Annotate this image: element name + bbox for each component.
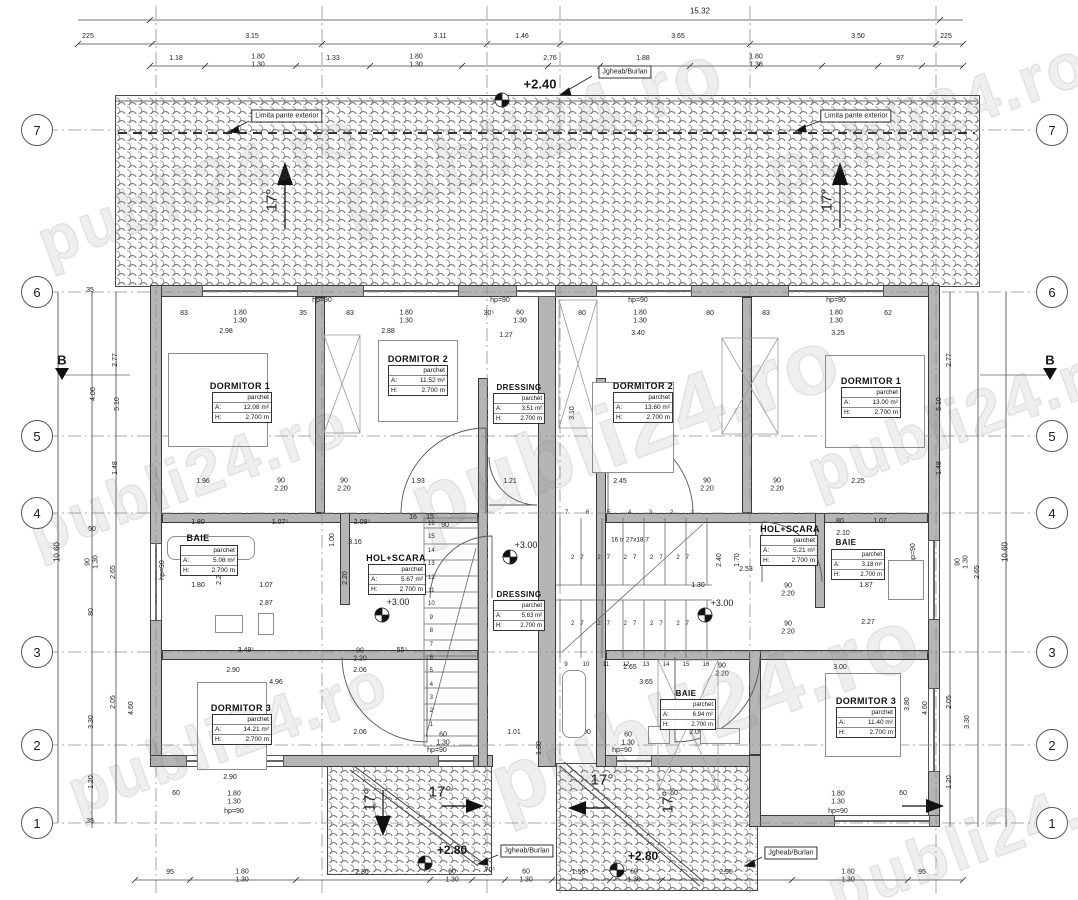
dim: hp=90 [224,808,244,816]
room-height: 2.700 m [792,557,816,564]
room-height: 2.700 m [860,572,882,578]
stair-num: 9 [556,662,576,668]
slope-label: 17° [660,791,677,814]
grid-label: 3 [1048,645,1055,660]
dim: 60 [899,790,907,798]
room-area: 13.00 m² [872,399,898,406]
callout-jgheab: Jgheab/Burlan [500,845,553,858]
slope-label: 17° [819,189,836,212]
room-height: 2.700 m [422,387,446,394]
room-finish: parchet [247,716,269,723]
stair-num: 16 [428,521,435,527]
dim: 80 [88,608,96,616]
dim: 2.65 [110,565,118,579]
room-finish: parchet [693,702,713,708]
dim: 60 1.30 [445,868,459,883]
room-info: parchet A:11.52 m² H:2.700 m [388,365,448,396]
height-label: H: [371,586,378,593]
area-label: A: [496,406,502,412]
grid-bubble-left-1: 1 [21,807,53,839]
room-area: 5.63 m² [522,613,542,619]
section-letter: B [57,353,66,368]
dim: 1.80 1.30 [831,790,845,805]
dim: 2.08⁵ [354,519,371,527]
room-area: 11.52 m² [420,377,445,384]
room-finish: parchet [871,709,893,716]
dim: 95 [166,869,174,877]
section-letter: B [1045,353,1054,368]
area-label: A: [834,562,840,568]
area-label: A: [496,613,502,619]
dim: 1.20 [946,775,954,789]
dim: 3.00 [833,664,847,672]
stair-num: 3 [640,510,661,516]
room-title: DORMITOR 1 [210,381,270,391]
room-title: DRESSING [497,590,542,599]
dim: 2.05 [946,695,954,709]
dim: 2.87 [259,600,273,608]
dim: 5.10 [114,397,122,411]
stair-num: 2 [428,708,435,714]
dim: 2.90 [719,869,733,877]
grid-bubble-right-4: 4 [1036,497,1068,529]
area-label: A: [663,712,669,718]
dim: hp=90 [427,747,447,755]
level-label: +2.40 [524,77,557,92]
callout-limita: Limita pante exterior [251,110,322,123]
dim: 1.07 [259,582,273,590]
stair-num: 5 [428,668,435,674]
dim: 62 [884,310,892,318]
stair-num: 6 [428,655,435,661]
grid-label: 4 [1048,506,1055,521]
dim: 1.80 1.30 [233,309,247,324]
area-label: A: [371,576,377,583]
dim: 4.96 [269,679,283,687]
room-area: 11.40 m² [868,719,893,726]
slope-label: 17° [429,784,452,801]
room-area: 3.51 m² [522,406,542,412]
room-finish: parchet [423,367,445,374]
room-height: 2.700 m [212,567,236,574]
dim: 3.15 [245,33,259,41]
room-finish: parchet [522,396,542,402]
dim: 4.60 [128,701,136,715]
stair-num: 10 [428,601,435,607]
room-finish: parchet [401,566,423,573]
dim: 2.90 [223,774,237,782]
shower [888,560,924,600]
grid-bubble-left-3: 3 [21,636,53,668]
grid-bubble-left-2: 2 [21,729,53,761]
grid-bubble-left-5: 5 [21,420,53,452]
grid-label: 2 [33,738,40,753]
area-label: A: [183,557,189,564]
sink [700,728,740,744]
dim: 35 [86,287,94,295]
dim: 1.48 [936,461,944,475]
room-height: 2.700 m [647,414,671,421]
dim: 90 2.20 [337,477,351,492]
room-info: parchet A:5.67 m² H:2.700 m [368,564,426,595]
grid-bubble-right-7: 7 [1036,114,1068,146]
room-area: 6.94 m² [693,712,713,718]
stair-num: 14 [428,548,435,554]
dim: 3.10 [569,406,577,420]
dim: 60 1.30 [621,731,635,746]
dim: 95 [918,869,926,877]
dim: hp=90 [828,808,848,816]
dim: 2.10 [836,530,850,538]
grid-bubble-right-2: 2 [1036,729,1068,761]
room-area: 5.21 m² [793,547,815,554]
dim: 3.65 [639,679,653,687]
stair-num: 1 [682,510,703,516]
dim: 80 [706,310,714,318]
room-info: parchet A:12.08 m² H:2.700 m [212,392,272,423]
dim: 83 [180,310,188,318]
stair-num: 9 [428,615,435,621]
room-finish: parchet [876,389,898,396]
sink [215,615,243,633]
stair-num: 2 [661,510,682,516]
dim: 1.30 [691,582,705,590]
height-label: H: [183,567,190,574]
dim: 1.80 1.30 [235,868,249,883]
dim: 2.90 [226,667,240,675]
area-label: A: [844,399,850,406]
room-title: HOL+SCARA [366,553,426,563]
stair-num: 11 [428,588,435,594]
height-label: H: [496,623,502,629]
room-info: parchet A:14.21 m² H:2.700 m [212,714,272,745]
height-label: H: [215,414,222,421]
room-finish: parchet [247,394,269,401]
slope-label: 17° [591,772,614,789]
dim: 1.80 1.30 [227,790,241,805]
stair-num: 13 [636,662,656,668]
height-label: H: [391,387,398,394]
dim: 2.25 [851,478,865,486]
drawing-linework [0,0,1078,900]
grid-label: 6 [33,285,40,300]
grid-lines [22,6,1035,895]
tread-dims: 27 27 27 27 27 [571,621,695,627]
dim: 1.93 [411,478,425,486]
dim: 10.60 [1002,542,1011,562]
room-height: 2.700 m [246,414,270,421]
room-info: parchet A:3.51 m² H:2.700 m [493,393,545,424]
area-label: A: [391,377,397,384]
room-title: DRESSING [497,383,542,392]
grid-bubble-left-4: 4 [21,497,53,529]
grid-label: 2 [1048,738,1055,753]
dim: 55⁵ [397,647,408,655]
stair-num: 10 [576,662,596,668]
dim: 83 [346,310,354,318]
stair-num: 7 [556,510,577,516]
floor-plan-sheet: publi24.ro publi24.ro publi24.ro publi24… [0,0,1078,900]
dim: 1.48 [112,461,120,475]
dim: 60 1.30 [513,309,527,324]
grid-label: 5 [1048,429,1055,444]
room-height: 2.700 m [520,416,542,422]
dim: 90 2.20 [353,647,367,662]
grid-label: 6 [1048,285,1055,300]
dim: 1.80 1.30 [251,53,265,68]
dim: 1.07 [873,518,887,526]
room-area: 12.08 m² [243,404,269,411]
area-label: A: [616,404,622,411]
dim: hp=90 [612,747,632,755]
dim: 5.10 [936,397,944,411]
room-finish: parchet [522,603,542,609]
height-label: H: [763,557,770,564]
dim: 83 [762,310,770,318]
dim: 2.40 [716,553,724,567]
room-height: 2.700 m [870,729,894,736]
dim: 2.76 [543,55,557,63]
room-area: 5.08 m² [213,557,235,564]
section-arrow-icon [55,368,69,380]
level-label: +3.00 [387,597,410,607]
dim: 90 2.20 [700,477,714,492]
dim: 2.20 [342,571,350,585]
dim: 90 1.30 [954,555,969,569]
stair-num: 4 [428,682,435,688]
callout-jgheab: Jgheab/Burlan [598,66,651,79]
dim: 1.80 [191,582,205,590]
grid-bubble-right-5: 5 [1036,420,1068,452]
stair-numbers-right-top: 7654321 [556,510,703,516]
dim: 3.50 [851,33,865,41]
dim: 90 2.20 [715,662,729,677]
stair-num: 1 [428,722,435,728]
stair-num: 12 [616,662,636,668]
room-info: parchet A:11.40 m² H:2.700 m [836,707,896,738]
stair-num: 13 [428,561,435,567]
room-area: 5.67 m² [401,576,423,583]
dim: 4.60 [922,701,930,715]
dim: 80 [578,310,586,318]
stair-num: 15 [676,662,696,668]
dim: 1.55⁵ [572,869,589,877]
dim: 90 2.20 [770,477,784,492]
dim: 2.88 [381,328,395,336]
dim: 2.65 [974,565,982,579]
grid-bubble-left-6: 6 [21,276,53,308]
room-title: DORMITOR 3 [211,703,271,713]
dim: 1.21 [503,478,517,486]
dim: 35 [299,310,307,318]
dim: 4.00 [90,387,98,401]
dim: 3.40 [631,330,645,338]
room-info: parchet A:13.00 m² H:2.700 m [841,387,901,418]
dim: 2.06 [353,667,367,675]
grid-bubble-right-1: 1 [1036,807,1068,839]
dim: 10.60 [54,542,63,562]
dim: 60 1.30 [627,868,641,883]
dim: 90 2.20 [781,582,795,597]
dim: 90 2.20 [274,477,288,492]
dim: hp=90 [312,297,332,305]
dim: 1.33 [326,55,340,63]
dim: 3.25 [831,330,845,338]
room-finish: parchet [648,394,670,401]
room-finish: parchet [862,552,882,558]
dim: 1.00 [329,533,337,547]
tread-dims: 27 27 27 27 27 [571,555,695,561]
level-label: +2.80 [437,843,467,857]
dim: 35 [86,818,94,826]
dim: 60 1.30 [519,868,533,883]
height-label: H: [839,729,846,736]
level-label: +3.00 [515,540,538,550]
dim: 97 [896,55,904,63]
stair-num: 4 [619,510,640,516]
stair-numbers-left: 16151413121110987654321 [428,521,435,728]
dim: 3.30 [964,715,972,729]
room-title: DORMITOR 2 [613,381,673,391]
grid-bubble-right-3: 3 [1036,636,1068,668]
height-label: H: [215,736,222,743]
dim: 1.80 1.30 [633,309,647,324]
room-finish: parchet [793,537,815,544]
room-info: parchet A:6.94 m² H:2.700 m [660,699,716,730]
grid-label: 4 [33,506,40,521]
dim: 2.77 [946,353,954,367]
stair-num: 6 [577,510,598,516]
height-label: H: [844,409,851,416]
stair-numbers-right-bottom: 910111213141516 [556,662,716,668]
dim: 2.45 [613,478,627,486]
stair-num: 14 [656,662,676,668]
area-label: A: [215,404,221,411]
grid-bubble-left-7: 7 [21,114,53,146]
grid-bubble-right-6: 6 [1036,276,1068,308]
stair-num: 16 [696,662,716,668]
room-finish: parchet [213,547,235,554]
stair-num: 3 [428,695,435,701]
room-title: HOL+SCARA [760,524,820,534]
dim: 1.46 [515,33,529,41]
dim: 50 [88,526,96,534]
dim: 1.80 1.30 [841,868,855,883]
grid-label: 3 [33,645,40,660]
dim: 1.80 1.30 [829,309,843,324]
grid-label: 5 [33,429,40,444]
room-info: parchet A:13.60 m² H:2.700 m [613,392,673,423]
room-info: parchet A:5.08 m² H:2.700 m [180,545,238,576]
level-symbols [375,93,712,877]
level-label: +2.80 [628,849,658,863]
level-label: +3.00 [711,598,734,608]
room-title: BAIE [676,689,697,698]
room-area: 13.60 m² [644,404,670,411]
stair-num: 7 [428,642,435,648]
grid-label: 1 [1048,816,1055,831]
dim: 3.16 [348,539,362,547]
room-title: BAIE [836,538,857,547]
dim: 1.20 [88,775,96,789]
dim: 2.05 [110,695,118,709]
room-height: 2.700 m [875,409,899,416]
dim: 16 [409,514,417,522]
dim: 80 [836,518,844,526]
room-area: 3.18 m² [862,562,882,568]
dim: 1.07⁵ [272,519,289,527]
room-height: 2.700 m [520,623,542,629]
height-label: H: [663,722,669,728]
dim: 1.80 1.30 [399,309,413,324]
dim: 3.49⁵ [238,647,255,655]
dim: 1.88 [636,55,650,63]
dim: 2.53 [739,566,753,574]
dim: 1.87 [859,582,873,590]
stair-num: 11 [596,662,616,668]
dim: 90 1.30 [84,555,99,569]
dim: 1.96 [196,478,210,486]
dim: 3.30 [88,715,96,729]
room-height: 2.700 m [246,736,270,743]
stair-num: 12 [428,575,435,581]
dim: 1.80 1.30 [409,53,423,68]
grid-label: 7 [33,123,40,138]
room-height: 2.700 m [691,722,713,728]
dim: 1.27 [499,332,513,340]
toilet [258,613,274,635]
slope-label: 17° [362,789,379,812]
grid-label: 7 [1048,123,1055,138]
height-label: H: [496,416,502,422]
room-info: parchet A:5.63 m² H:2.700 m [493,600,545,631]
slope-label: 17° [264,189,281,212]
dim: 90 [441,522,449,530]
dim: 1.00 [536,741,544,755]
dim: 1.70 [734,553,742,567]
dim: 70⁵ [485,867,496,875]
stair-num: 8 [428,628,435,634]
room-title: DORMITOR 3 [836,696,896,706]
dim-total: 15.32 [690,8,710,17]
callout-jgheab: Jgheab/Burlan [764,847,817,860]
dim: 3.65 [671,33,685,41]
dim: hp=90 [490,297,510,305]
height-label: H: [616,414,623,421]
section-arrow-icon [1043,368,1057,380]
height-label: H: [834,572,840,578]
dim: 3.80 [904,697,912,711]
dim: 3.11 [433,33,446,41]
dim: 2.77 [112,353,120,367]
bathtub [562,670,586,738]
area-label: A: [763,547,769,554]
stair-annotation: 16 tr 27x18.7 [611,537,649,544]
dim: 1.01 [507,729,521,737]
room-height: 2.700 m [400,586,424,593]
dim: 1.18 [169,55,183,63]
dim: 90 2.20 [781,620,795,635]
room-area: 14.21 m² [243,726,269,733]
dim: 1.80 [191,519,205,527]
room-title: DORMITOR 1 [841,376,901,386]
area-label: A: [839,719,845,726]
stair-num: 5 [598,510,619,516]
room-title: BAIE [186,533,209,543]
dim: 225 [940,33,952,41]
dim: 225 [82,33,94,41]
room-title: DORMITOR 2 [388,354,448,364]
